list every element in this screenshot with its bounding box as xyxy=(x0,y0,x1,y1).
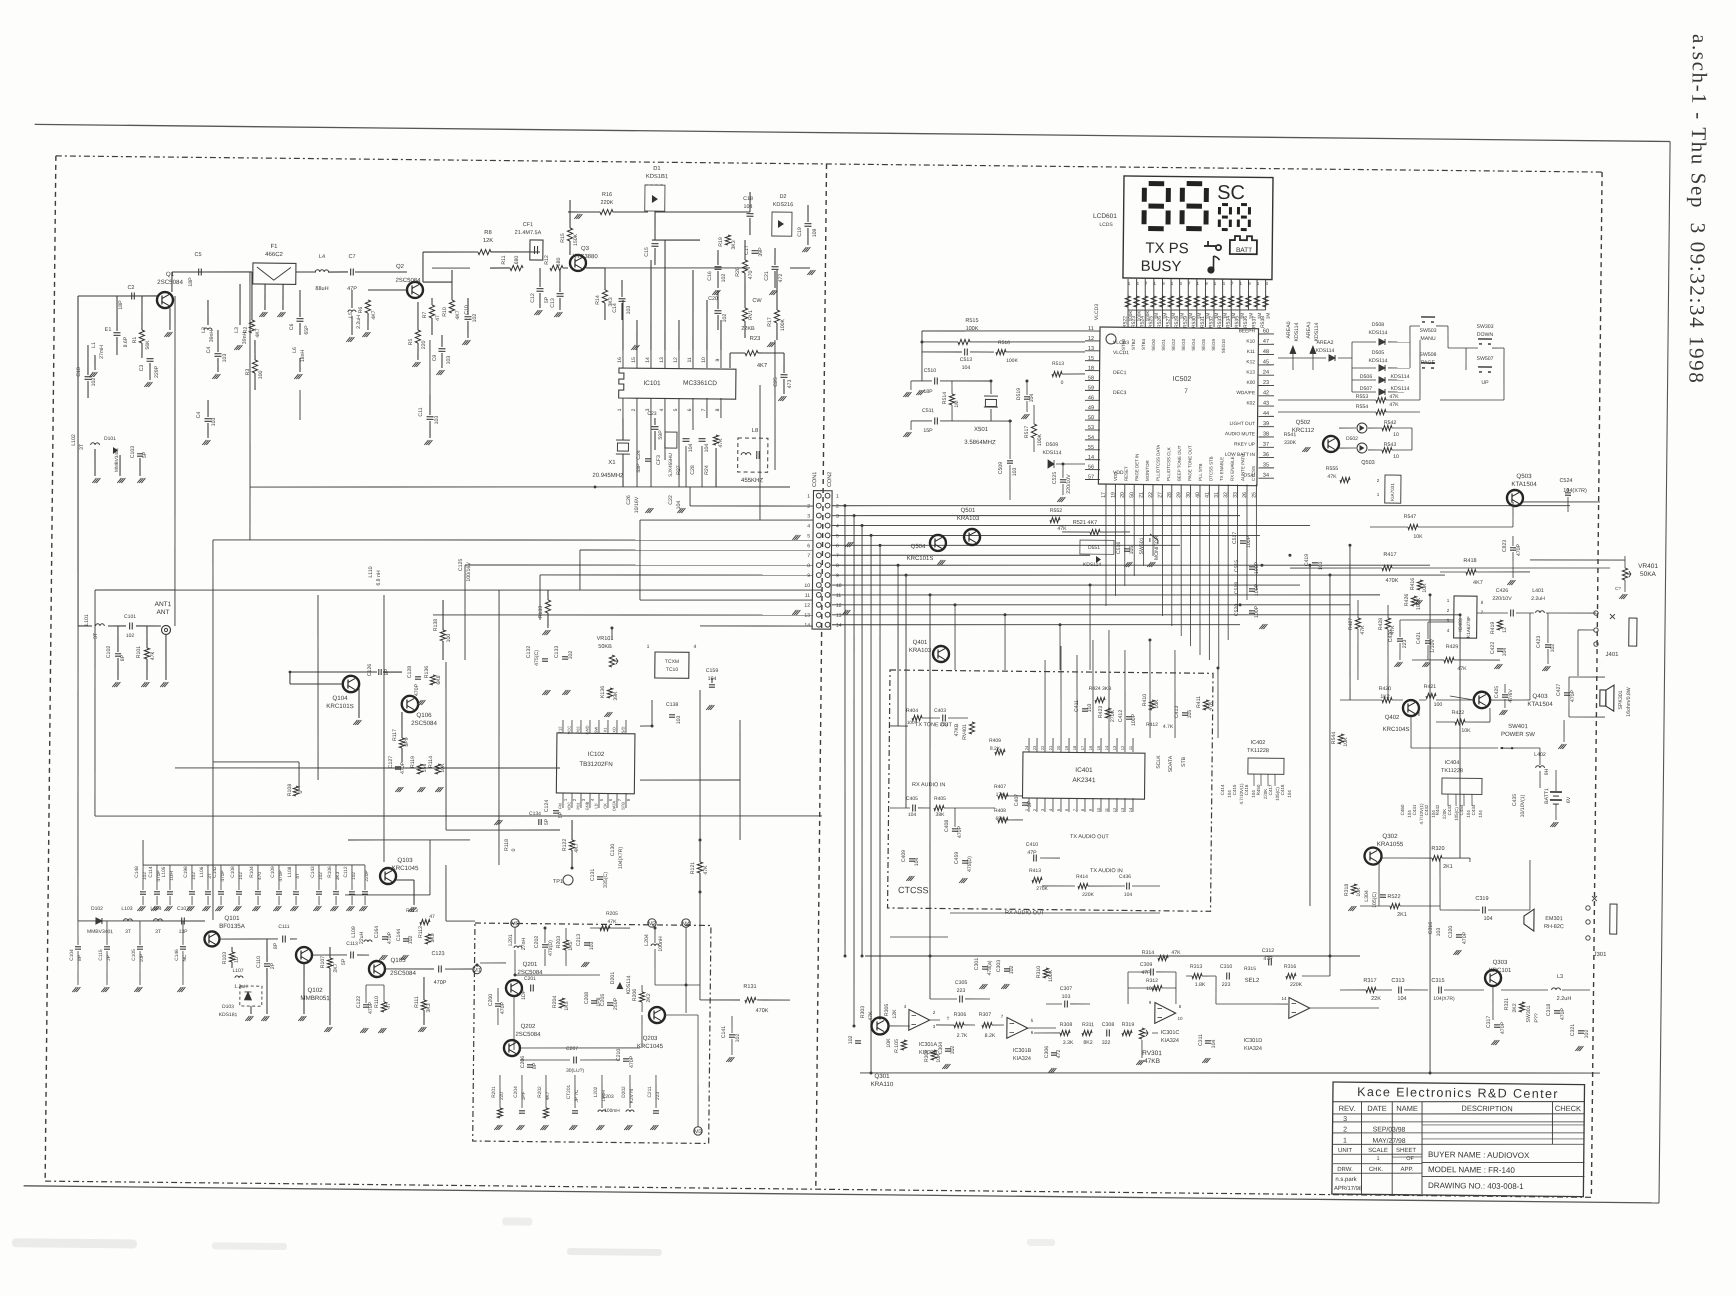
svg-text:229P: 229P xyxy=(154,365,160,378)
svg-text:SEG10: SEG10 xyxy=(1221,338,1226,353)
svg-text:E1: E1 xyxy=(105,327,112,333)
svg-text:4K7: 4K7 xyxy=(574,843,580,852)
svg-text:102: 102 xyxy=(568,651,574,660)
svg-text:KIA324: KIA324 xyxy=(1161,1038,1179,1044)
svg-text:11: 11 xyxy=(687,357,693,362)
svg-text:C408: C408 xyxy=(944,820,950,833)
svg-text:C423: C423 xyxy=(1536,636,1542,649)
svg-text:11: 11 xyxy=(1088,326,1094,332)
svg-text:C202: C202 xyxy=(534,936,540,949)
svg-text:AREA0: AREA0 xyxy=(1286,321,1292,338)
svg-text:100K: 100K xyxy=(1145,310,1150,322)
svg-text:8K2: 8K2 xyxy=(1083,1040,1092,1046)
svg-text:223: 223 xyxy=(1402,639,1408,648)
svg-text:1M: 1M xyxy=(1257,313,1262,320)
svg-text:R307: R307 xyxy=(979,1012,992,1018)
svg-text:R308: R308 xyxy=(1060,1022,1073,1028)
svg-text:11: 11 xyxy=(836,593,841,599)
svg-text:R411: R411 xyxy=(1196,696,1202,708)
svg-text:DRW.: DRW. xyxy=(1337,1167,1353,1173)
svg-text:KRC1045: KRC1045 xyxy=(392,865,419,872)
svg-text:R412: R412 xyxy=(1146,722,1158,728)
svg-text:34: 34 xyxy=(1263,473,1269,479)
svg-text:R417: R417 xyxy=(1383,552,1396,558)
svg-text:Q504: Q504 xyxy=(911,544,926,550)
svg-text:270K: 270K xyxy=(1036,886,1048,892)
svg-text:1: 1 xyxy=(807,494,810,500)
svg-text:4: 4 xyxy=(659,408,665,411)
svg-text:1/10V: 1/10V xyxy=(1430,639,1436,653)
svg-text:C316: C316 xyxy=(1428,922,1434,935)
svg-text:C143: C143 xyxy=(310,866,316,878)
svg-text:D505: D505 xyxy=(1372,350,1385,356)
svg-text:R315: R315 xyxy=(1244,966,1256,972)
svg-text:478(D): 478(D) xyxy=(967,856,973,872)
svg-text:IC301D: IC301D xyxy=(1244,1038,1263,1044)
svg-text:466C2: 466C2 xyxy=(265,252,283,258)
svg-text:R24: R24 xyxy=(704,465,710,475)
svg-text:L107: L107 xyxy=(232,968,243,974)
svg-text:R450: R450 xyxy=(1256,784,1261,795)
svg-text:680: 680 xyxy=(514,256,520,265)
svg-text:39K: 39K xyxy=(613,691,619,701)
svg-text:DEC3: DEC3 xyxy=(1113,390,1127,396)
svg-text:C425: C425 xyxy=(1494,686,1500,699)
svg-text:49: 49 xyxy=(1088,405,1094,411)
svg-text:R423: R423 xyxy=(1098,706,1104,719)
svg-text:R414: R414 xyxy=(1076,874,1088,880)
svg-text:223: 223 xyxy=(1222,982,1231,988)
svg-text:47P: 47P xyxy=(1027,850,1037,856)
svg-text:5P: 5P xyxy=(142,451,148,458)
svg-text:R442: R442 xyxy=(1435,804,1440,815)
svg-text:R106: R106 xyxy=(327,866,333,878)
svg-text:47K: 47K xyxy=(607,919,617,925)
svg-text:C110: C110 xyxy=(256,956,262,968)
svg-text:1: 1 xyxy=(1376,1156,1379,1162)
svg-text:C416: C416 xyxy=(1244,784,1249,795)
svg-text:220: 220 xyxy=(421,340,427,349)
svg-text:43: 43 xyxy=(1263,401,1269,407)
svg-text:C23: C23 xyxy=(647,411,656,417)
svg-text:R202: R202 xyxy=(537,1086,543,1098)
svg-text:C525: C525 xyxy=(1052,472,1058,485)
svg-text:R554: R554 xyxy=(1356,404,1369,410)
svg-text:Q303: Q303 xyxy=(1493,960,1508,966)
svg-text:T: T xyxy=(947,1016,950,1021)
svg-text:DRAWING NO.: 403-008-1: DRAWING NO.: 403-008-1 xyxy=(1428,1181,1524,1191)
svg-text:L201: L201 xyxy=(508,934,514,946)
svg-text:47KB: 47KB xyxy=(1144,1058,1160,1065)
svg-text:D1: D1 xyxy=(653,166,660,172)
svg-text:2K1: 2K1 xyxy=(1443,864,1453,870)
svg-text:3K9: 3K9 xyxy=(430,933,436,942)
svg-text:C310: C310 xyxy=(1220,964,1233,970)
svg-text:C210: C210 xyxy=(616,1049,622,1062)
svg-text:472: 472 xyxy=(1056,1049,1062,1058)
svg-text:220/10V: 220/10V xyxy=(1492,596,1512,602)
svg-text:SEP/03/98: SEP/03/98 xyxy=(1373,1126,1406,1133)
svg-text:IC301B: IC301B xyxy=(1013,1048,1032,1054)
svg-text:IC402: IC402 xyxy=(1251,740,1266,746)
svg-text:1M: 1M xyxy=(1171,313,1176,320)
svg-text:103: 103 xyxy=(222,354,228,363)
svg-text:470P: 470P xyxy=(1500,1021,1506,1034)
svg-text:C10: C10 xyxy=(464,305,470,315)
svg-text:47: 47 xyxy=(429,914,435,920)
svg-text:C311: C311 xyxy=(1198,1034,1204,1046)
svg-text:ANT1: ANT1 xyxy=(155,601,172,608)
svg-text:12: 12 xyxy=(1088,336,1094,342)
svg-text:38: 38 xyxy=(1263,431,1269,437)
svg-text:59: 59 xyxy=(1088,385,1094,391)
svg-text:R405: R405 xyxy=(934,796,946,802)
svg-text:53: 53 xyxy=(1088,425,1094,431)
svg-text:BATT1: BATT1 xyxy=(1544,788,1550,804)
svg-text:C319: C319 xyxy=(1475,896,1488,902)
svg-text:TC10: TC10 xyxy=(666,667,679,673)
svg-text:13: 13 xyxy=(659,357,665,363)
svg-text:R318: R318 xyxy=(1344,884,1350,897)
svg-text:102: 102 xyxy=(1550,644,1556,653)
svg-text:3.5864MHZ: 3.5864MHZ xyxy=(964,440,996,446)
svg-text:L8: L8 xyxy=(752,428,759,434)
svg-text:R407: R407 xyxy=(994,784,1006,790)
svg-text:REV.: REV. xyxy=(1339,1104,1356,1113)
svg-text:R17: R17 xyxy=(767,317,773,327)
svg-text:4: 4 xyxy=(807,523,810,529)
svg-text:R515: R515 xyxy=(965,318,978,324)
svg-text:47: 47 xyxy=(1263,339,1269,345)
svg-text:1M: 1M xyxy=(1205,313,1210,320)
svg-text:DOWN: DOWN xyxy=(1477,332,1494,338)
svg-text:C204: C204 xyxy=(513,1086,519,1098)
svg-text:LCDS: LCDS xyxy=(1099,222,1113,228)
svg-text:R418: R418 xyxy=(1463,558,1476,564)
svg-text:C5: C5 xyxy=(194,252,201,258)
svg-text:10K: 10K xyxy=(1154,699,1160,709)
svg-text:R555: R555 xyxy=(1326,466,1339,472)
svg-text:103: 103 xyxy=(676,715,682,724)
svg-text:65P: 65P xyxy=(304,325,310,335)
svg-text:100K: 100K xyxy=(1136,310,1141,322)
svg-text:1M: 1M xyxy=(1180,313,1185,320)
svg-text:C515: C515 xyxy=(1234,560,1240,573)
svg-text:10: 10 xyxy=(804,583,810,589)
svg-text:30(LU?): 30(LU?) xyxy=(566,1068,584,1074)
svg-text:103: 103 xyxy=(1012,467,1018,476)
svg-text:R553: R553 xyxy=(1356,394,1369,400)
svg-text:SW303: SW303 xyxy=(1477,324,1494,330)
svg-text:109: 109 xyxy=(812,228,818,237)
svg-text:104: 104 xyxy=(744,204,753,210)
svg-text:R204: R204 xyxy=(552,996,558,1009)
svg-text:L106: L106 xyxy=(199,866,205,877)
svg-text:38K: 38K xyxy=(936,812,946,818)
svg-text:C19: C19 xyxy=(797,227,803,237)
svg-text:C102: C102 xyxy=(106,646,112,659)
svg-text:R118: R118 xyxy=(504,839,510,851)
svg-text:Q3: Q3 xyxy=(581,246,590,252)
svg-text:C122: C122 xyxy=(356,996,362,1009)
svg-text:VLCD3: VLCD3 xyxy=(1094,304,1100,320)
svg-text:R101: R101 xyxy=(136,646,142,659)
svg-text:R542: R542 xyxy=(1384,420,1397,426)
svg-text:54: 54 xyxy=(1088,435,1094,441)
svg-text:C516: C516 xyxy=(1116,542,1122,555)
svg-text:KDS114: KDS114 xyxy=(1083,562,1102,568)
svg-text:5P: 5P xyxy=(558,811,564,818)
svg-text:R7: R7 xyxy=(422,312,428,319)
svg-text:56: 56 xyxy=(1088,465,1094,471)
svg-text:7: 7 xyxy=(807,553,810,559)
svg-text:47K: 47K xyxy=(1457,666,1467,672)
svg-text:102: 102 xyxy=(472,314,478,323)
svg-text:102: 102 xyxy=(950,1046,956,1055)
svg-text:C420: C420 xyxy=(1388,630,1394,643)
svg-text:J301: J301 xyxy=(1593,952,1607,958)
svg-text:3T: 3T xyxy=(125,929,131,935)
svg-text:R114: R114 xyxy=(428,756,434,768)
svg-text:C431: C431 xyxy=(1412,804,1417,815)
svg-text:13: 13 xyxy=(804,613,810,619)
svg-text:47/6V: 47/6V xyxy=(1508,689,1514,703)
svg-text:R552: R552 xyxy=(1050,508,1063,514)
svg-text:KRC1045: KRC1045 xyxy=(637,1044,664,1050)
svg-text:AK2341: AK2341 xyxy=(1072,777,1096,784)
svg-text:22K: 22K xyxy=(1371,996,1381,1002)
svg-text:9H: 9H xyxy=(1544,768,1550,775)
svg-text:8.2K: 8.2K xyxy=(985,1033,996,1039)
svg-text:R321: R321 xyxy=(1504,998,1510,1011)
svg-text:L101: L101 xyxy=(84,614,90,626)
svg-text:100K: 100K xyxy=(780,318,786,331)
svg-text:47k: 47k xyxy=(150,651,156,660)
svg-text:104: 104 xyxy=(1029,394,1035,403)
svg-text:C427: C427 xyxy=(1556,684,1562,697)
svg-text:C303: C303 xyxy=(996,960,1002,973)
svg-text:8P: 8P xyxy=(273,942,279,949)
svg-text:102: 102 xyxy=(1009,965,1015,974)
svg-text:R410: R410 xyxy=(1142,694,1148,707)
svg-text:C823: C823 xyxy=(1502,540,1508,553)
svg-text:335(C): 335(C) xyxy=(603,872,609,888)
svg-text:R312: R312 xyxy=(1146,978,1158,984)
svg-text:R419: R419 xyxy=(1490,622,1496,635)
svg-text:C317: C317 xyxy=(1486,1016,1492,1029)
svg-text:R320: R320 xyxy=(1431,846,1444,852)
svg-text:R14: R14 xyxy=(595,295,601,305)
svg-text:VDC: VDC xyxy=(566,802,571,811)
svg-text:102: 102 xyxy=(722,314,728,323)
svg-text:7: 7 xyxy=(701,408,707,411)
svg-text:D502: D502 xyxy=(1346,436,1358,442)
svg-text:SDATA: SDATA xyxy=(1168,755,1174,772)
svg-text:102: 102 xyxy=(91,378,97,387)
svg-text:1K5: 1K5 xyxy=(564,1001,570,1010)
svg-text:37: 37 xyxy=(1263,442,1269,448)
svg-text:K02: K02 xyxy=(1246,400,1255,406)
svg-text:23: 23 xyxy=(1263,380,1269,386)
svg-text:F1: F1 xyxy=(270,244,278,250)
svg-text:AREA2: AREA2 xyxy=(1316,340,1333,346)
svg-text:4K7: 4K7 xyxy=(1473,580,1483,586)
svg-text:C207: C207 xyxy=(566,1046,578,1052)
svg-text:R521 4K7: R521 4K7 xyxy=(1073,520,1098,526)
svg-text:C407: C407 xyxy=(1014,794,1020,807)
svg-text:14: 14 xyxy=(836,623,842,629)
svg-text:RESET: RESET xyxy=(1124,466,1129,481)
svg-text:C13: C13 xyxy=(550,298,556,308)
svg-text:KRA110: KRA110 xyxy=(871,1081,894,1088)
svg-text:14: 14 xyxy=(1088,455,1094,461)
svg-text:TX ENABLE: TX ENABLE xyxy=(1219,457,1224,481)
svg-text:R133: R133 xyxy=(538,606,544,619)
svg-text:10K: 10K xyxy=(1356,887,1362,897)
svg-text:SW: SW xyxy=(593,727,598,734)
svg-text:104: 104 xyxy=(962,365,971,371)
svg-text:102: 102 xyxy=(126,633,135,639)
svg-text:R314: R314 xyxy=(1142,950,1155,956)
svg-text:1: 1 xyxy=(836,494,839,500)
svg-text:STB0: STB0 xyxy=(1121,338,1126,350)
svg-text:10: 10 xyxy=(234,957,240,963)
svg-text:45: 45 xyxy=(1263,359,1269,365)
svg-text:11: 11 xyxy=(805,593,810,599)
svg-text:CK: CK xyxy=(602,803,607,809)
svg-text:POWER SW: POWER SW xyxy=(1501,732,1535,738)
svg-text:C513: C513 xyxy=(960,357,973,363)
svg-text:48: 48 xyxy=(1263,349,1269,355)
svg-text:102: 102 xyxy=(1584,1030,1590,1039)
svg-text:10K: 10K xyxy=(936,1053,942,1063)
svg-text:8.2K: 8.2K xyxy=(990,746,1001,752)
svg-text:APP.: APP. xyxy=(1401,1167,1414,1173)
svg-text:a.sch-1 - Thu Sep 3 09:32:34: a.sch-1 - Thu Sep 3 09:32:34 1998 xyxy=(1684,34,1712,385)
svg-text:CHECK: CHECK xyxy=(1555,1104,1581,1113)
svg-text:C436: C436 xyxy=(1119,874,1131,880)
svg-text:KRC104S: KRC104S xyxy=(1383,727,1410,733)
svg-text:C164: C164 xyxy=(374,926,380,939)
svg-text:2SC5084: 2SC5084 xyxy=(157,279,183,286)
svg-text:5P: 5P xyxy=(341,958,347,965)
svg-text:C9: C9 xyxy=(432,355,438,362)
svg-text:2K2: 2K2 xyxy=(1512,1003,1518,1012)
svg-text:C7: C7 xyxy=(348,254,355,260)
svg-text:AREA1: AREA1 xyxy=(1306,321,1312,338)
svg-text:8: 8 xyxy=(836,563,839,569)
svg-text:SEG1: SEG1 xyxy=(1161,338,1166,350)
svg-text:SW503: SW503 xyxy=(1419,328,1436,334)
svg-text:16: 16 xyxy=(617,357,623,363)
svg-text:27nH: 27nH xyxy=(521,938,527,951)
svg-text:MANU: MANU xyxy=(1420,336,1436,342)
svg-text:C405: C405 xyxy=(906,796,918,802)
svg-text:KDS114: KDS114 xyxy=(1314,322,1320,341)
svg-text:470P: 470P xyxy=(414,683,420,696)
svg-text:J401: J401 xyxy=(1605,652,1619,658)
svg-text:3: 3 xyxy=(807,513,810,519)
svg-text:MMBR051: MMBR051 xyxy=(300,995,330,1002)
svg-text:103: 103 xyxy=(1318,561,1324,570)
svg-text:7: 7 xyxy=(1184,388,1188,395)
svg-text:C4: C4 xyxy=(196,412,202,419)
svg-text:1: 1 xyxy=(617,408,623,411)
svg-text:R404: R404 xyxy=(906,708,918,714)
svg-text:Q402: Q402 xyxy=(1385,715,1400,721)
svg-text:D201: D201 xyxy=(610,972,616,985)
svg-text:8: 8 xyxy=(715,408,721,411)
svg-text:PLL STB: PLL STB xyxy=(1198,463,1203,481)
svg-text:KDS114: KDS114 xyxy=(1043,450,1062,456)
svg-text:C511: C511 xyxy=(922,408,934,414)
svg-text:C213: C213 xyxy=(576,934,582,947)
svg-text:STB: STB xyxy=(1181,756,1187,767)
svg-text:478(a): 478(a) xyxy=(987,960,993,975)
svg-text:2: 2 xyxy=(1343,1127,1347,1134)
svg-text:R104: R104 xyxy=(249,866,255,878)
svg-text:100: 100 xyxy=(446,634,452,643)
svg-text:D103: D103 xyxy=(222,1004,234,1010)
svg-text:KDS114: KDS114 xyxy=(1315,348,1334,354)
svg-text:X501: X501 xyxy=(974,427,989,433)
svg-text:C146: C146 xyxy=(174,949,180,961)
svg-text:C127: C127 xyxy=(388,756,394,769)
svg-text:R413: R413 xyxy=(1029,868,1041,874)
svg-text:58: 58 xyxy=(1088,376,1094,382)
svg-text:R8: R8 xyxy=(484,230,491,236)
svg-text:C208: C208 xyxy=(584,992,590,1005)
svg-text:SW501: SW501 xyxy=(1139,537,1145,554)
svg-text:R1: R1 xyxy=(132,337,138,344)
svg-text:104(X7R): 104(X7R) xyxy=(618,847,624,870)
svg-text:R306: R306 xyxy=(954,1012,967,1018)
svg-text:1M: 1M xyxy=(1188,313,1193,320)
svg-text:2SC5084: 2SC5084 xyxy=(390,970,416,977)
svg-text:C318: C318 xyxy=(1546,1004,1552,1017)
svg-text:100P: 100P xyxy=(1131,713,1137,726)
svg-text:KDS114: KDS114 xyxy=(1391,374,1410,380)
svg-text:14: 14 xyxy=(1281,996,1287,1001)
svg-text:10: 10 xyxy=(1393,432,1399,438)
svg-text:470P: 470P xyxy=(1516,543,1522,556)
svg-text:M5: M5 xyxy=(511,921,519,927)
svg-text:L203: L203 xyxy=(602,1094,613,1100)
svg-text:C410: C410 xyxy=(1026,842,1039,848)
svg-text:1M: 1M xyxy=(1248,313,1253,320)
svg-text:C114: C114 xyxy=(148,866,154,878)
svg-text:KRC101S: KRC101S xyxy=(326,703,354,710)
svg-text:C148: C148 xyxy=(134,866,140,878)
svg-text:1M: 1M xyxy=(1162,313,1167,320)
svg-text:220K: 220K xyxy=(1290,982,1303,988)
svg-text:VCC: VCC xyxy=(566,726,571,735)
svg-text:C112: C112 xyxy=(343,866,349,878)
svg-text:104: 104 xyxy=(914,857,920,866)
svg-text:C426: C426 xyxy=(1496,588,1509,594)
svg-text:K11: K11 xyxy=(1247,349,1256,355)
svg-text:Q403: Q403 xyxy=(1532,693,1548,700)
svg-text:R108: R108 xyxy=(287,784,293,797)
svg-text:TB31202FN: TB31202FN xyxy=(579,761,612,768)
svg-text:SEG4: SEG4 xyxy=(1191,338,1196,350)
svg-text:47K: 47K xyxy=(1360,625,1366,635)
svg-text:SCLK: SCLK xyxy=(1156,755,1162,769)
svg-text:UNIT: UNIT xyxy=(1338,1148,1352,1154)
svg-text:R112: R112 xyxy=(418,926,424,938)
svg-text:SEG5: SEG5 xyxy=(1201,338,1206,350)
svg-text:1K5: 1K5 xyxy=(568,941,574,950)
